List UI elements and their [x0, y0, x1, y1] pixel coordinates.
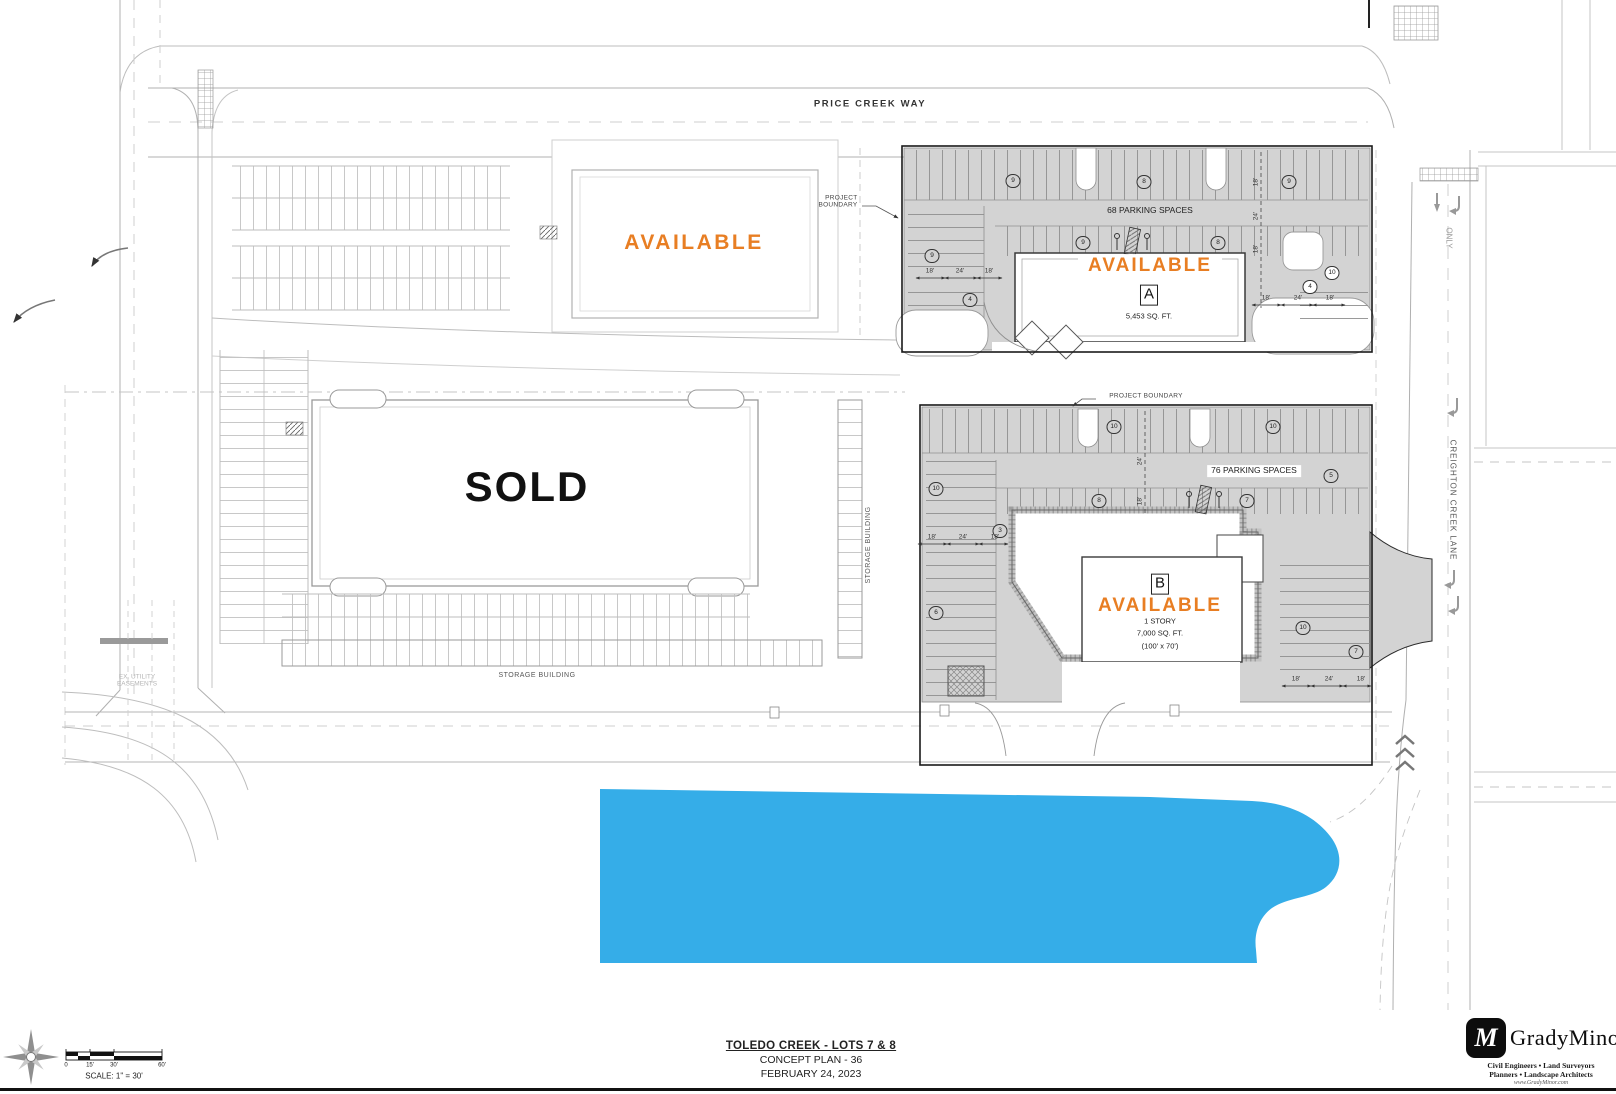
dim-label: 18': [985, 267, 993, 274]
lot-b-stall-count: 7: [1349, 645, 1364, 659]
road-chevrons: [1396, 736, 1414, 770]
lot-a-stall-count: 9: [1076, 236, 1091, 250]
site-plan-sheet: PRICE CREEK WAY CREIGHTON CREEK LANE ONL…: [0, 0, 1616, 1094]
lot-b-area-label: 7,000 SQ. FT.: [1137, 630, 1183, 639]
dim-label: 18': [1252, 245, 1259, 253]
storage-building-label-horizontal: STORAGE BUILDING: [498, 672, 575, 680]
dim-label: 18': [1357, 675, 1365, 682]
scale-label: SCALE: 1" = 30': [85, 1071, 143, 1080]
dim-label: 18': [926, 267, 934, 274]
lot-b-story-label: 1 STORY: [1144, 618, 1176, 627]
lot-b-parking-count-label: 76 PARKING SPACES: [1207, 465, 1301, 477]
lot-a-parking-count-label: 68 PARKING SPACES: [1107, 206, 1193, 216]
dim-label: 18': [1136, 497, 1143, 505]
sheet-subtitle: CONCEPT PLAN - 36: [726, 1054, 896, 1066]
lot-a-stall-count: 8: [1137, 175, 1152, 189]
scale-bar-graphic: [66, 1049, 162, 1060]
project-boundary-label-b: PROJECT BOUNDARY: [1109, 392, 1183, 399]
storage-building-label-vertical: STORAGE BUILDING: [865, 506, 873, 583]
lot-a-building-letter: A: [1140, 285, 1158, 306]
sheet-date: FEBRUARY 24, 2023: [726, 1068, 896, 1080]
project-boundary-label-a: PROJECT BOUNDARY: [818, 195, 857, 210]
lot-a-available-label: AVAILABLE: [1078, 254, 1222, 278]
lot-b-stall-count: 10: [929, 482, 944, 496]
lot-a-stall-count: 9: [925, 249, 940, 263]
only-marking-label: ONLY: [1444, 227, 1453, 248]
lot-b-stall-count: 5: [1324, 469, 1339, 483]
scale-tick-label: 60': [158, 1063, 166, 1070]
lot-a-stall-count: 4: [963, 293, 978, 307]
lot-a-stall-count: 4: [1303, 280, 1318, 294]
dim-label: 18': [1292, 675, 1300, 682]
ex-utility-easements-label: EX. UTILITY EASEMENTS: [117, 674, 157, 689]
compass-rose: [3, 1029, 59, 1085]
lot-b-available-label: AVAILABLE: [1098, 595, 1222, 617]
lot-b-stall-count: 10: [1296, 621, 1311, 635]
dim-label: 18': [991, 533, 999, 540]
scale-tick-label: 30': [110, 1063, 118, 1070]
dim-label: 18': [1326, 294, 1334, 301]
lot-b-stall-count: 8: [1092, 494, 1107, 508]
lot-a-stall-count: 9: [1006, 174, 1021, 188]
title-block: TOLEDO CREEK - LOTS 7 & 8 CONCEPT PLAN -…: [726, 1040, 896, 1080]
west-road: [14, 0, 238, 716]
lot-b-building-letter: B: [1151, 574, 1169, 595]
dim-label: 24': [1294, 294, 1302, 301]
lot-b-stall-count: 6: [929, 606, 944, 620]
dim-label: 18': [928, 533, 936, 540]
sold-label: SOLD: [465, 463, 590, 511]
scale-tick-label: 15': [86, 1063, 94, 1070]
dim-label: 18': [1252, 178, 1259, 186]
creighton-creek-lane-road: [1369, 0, 1478, 1010]
price-creek-way-label: PRICE CREEK WAY: [814, 100, 926, 111]
sheet-title: TOLEDO CREEK - LOTS 7 & 8: [726, 1040, 896, 1052]
dim-label: 24': [959, 533, 967, 540]
lot-a-stall-count: 9: [1282, 175, 1297, 189]
lake: [600, 789, 1339, 963]
site-plan-linework: [0, 0, 1616, 1094]
east-side-streets: [1474, 0, 1616, 802]
dim-label: 24': [1325, 675, 1333, 682]
sold-building: [282, 390, 758, 640]
dim-label: 24': [1252, 212, 1259, 220]
lot-b-stall-count: 7: [1240, 494, 1255, 508]
logo-services-line2: Planners • Landscape Architects: [1466, 1070, 1616, 1079]
dim-label: 18': [1262, 294, 1270, 301]
lot-b-stall-count: 10: [1266, 420, 1281, 434]
dim-label: 24': [1136, 457, 1143, 465]
lot-a-stall-count: 8: [1211, 236, 1226, 250]
gradyminor-logo: M GradyMinor Civil Engineers • Land Surv…: [1466, 1018, 1616, 1086]
gradyminor-name: GradyMinor: [1510, 1025, 1616, 1051]
lot-a-area-label: 5,453 SQ. FT.: [1126, 313, 1172, 322]
logo-website: www.GradyMinor.com: [1466, 1080, 1616, 1086]
lot-b-stall-count: 10: [1107, 420, 1122, 434]
scale-tick-label: 0: [64, 1063, 67, 1070]
sheet-border-line: [0, 1088, 1616, 1091]
lot-a-stall-count: 10: [1325, 266, 1340, 280]
creighton-creek-lane-label: CREIGHTON CREEK LANE: [1448, 440, 1457, 561]
dim-label: 24': [956, 267, 964, 274]
gradyminor-monogram-icon: M: [1466, 1018, 1506, 1058]
logo-services-line1: Civil Engineers • Land Surveyors: [1466, 1061, 1616, 1070]
lot-b-footprint-label: (100' x 70'): [1142, 643, 1179, 652]
nw-available-label: AVAILABLE: [624, 231, 764, 255]
